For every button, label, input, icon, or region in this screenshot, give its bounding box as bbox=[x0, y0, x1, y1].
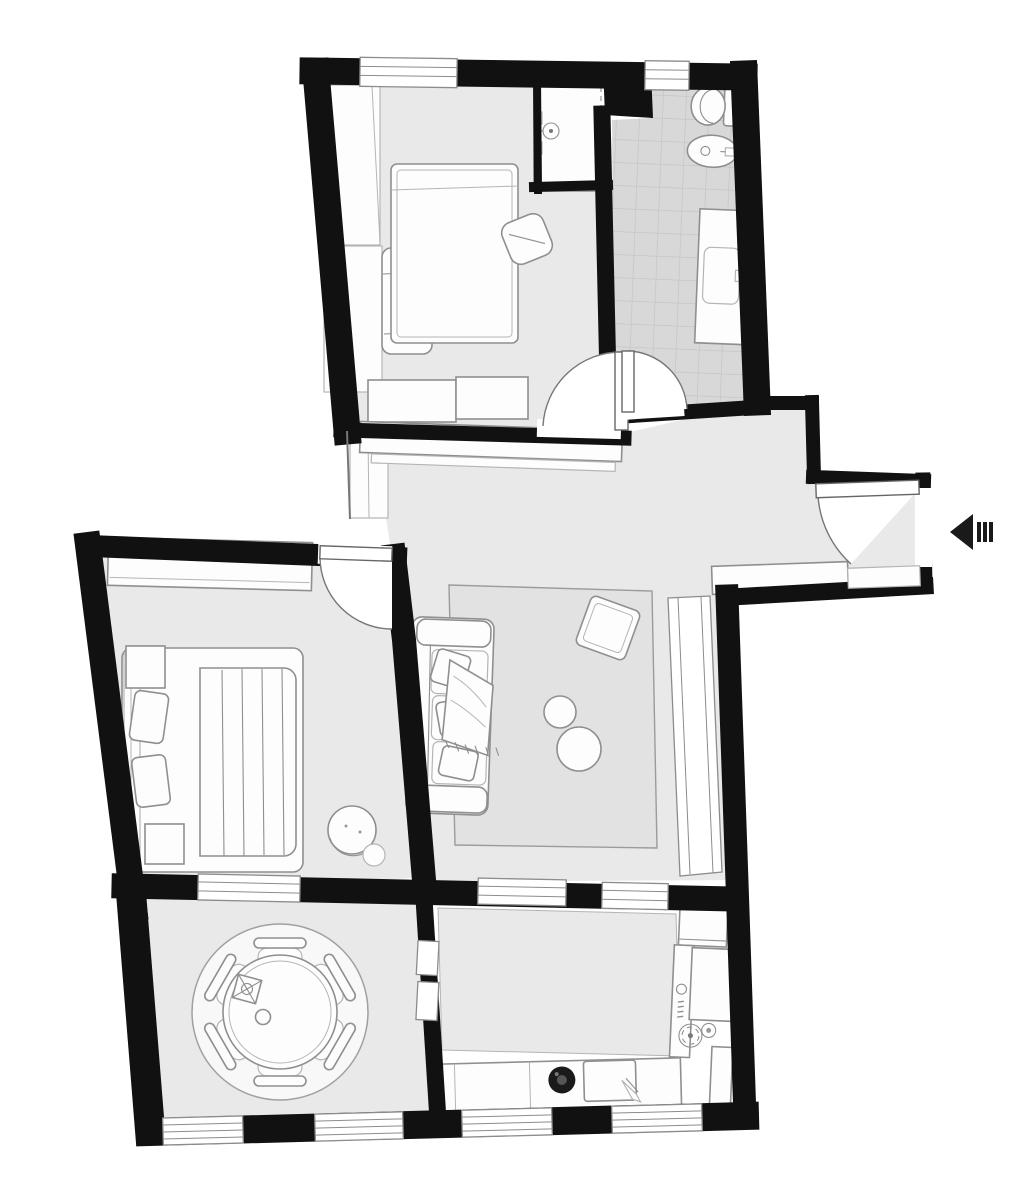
threshold-icon bbox=[848, 566, 921, 589]
window-icon bbox=[645, 61, 689, 91]
window-icon bbox=[198, 874, 301, 902]
window-icon bbox=[315, 1112, 404, 1141]
round-table-icon bbox=[223, 955, 337, 1069]
window-icon bbox=[602, 882, 669, 909]
entrance-arrow-icon bbox=[950, 514, 993, 550]
window-icon bbox=[462, 1108, 553, 1137]
window-icon bbox=[360, 57, 457, 87]
wall-shower-left bbox=[537, 79, 538, 190]
dining-room-furniture bbox=[192, 924, 368, 1100]
counter-icon bbox=[689, 948, 734, 1022]
floor-plan-drawing bbox=[0, 0, 1031, 1200]
wall-bathroom-right bbox=[744, 74, 757, 402]
floor-plan-canvas bbox=[0, 0, 1031, 1200]
nightstand-icon bbox=[145, 824, 184, 864]
coffee-table-large-icon bbox=[557, 727, 601, 771]
tall-cabinet-icon bbox=[709, 1047, 733, 1108]
desk-icon bbox=[368, 377, 528, 422]
wall-dining-west bbox=[132, 905, 150, 1130]
nightstand-icon bbox=[126, 646, 165, 688]
bed-icon bbox=[391, 164, 518, 343]
coffee-table-small-icon bbox=[544, 696, 576, 728]
cutting-board-knife-icon bbox=[583, 1060, 640, 1103]
wall-shower-bottom bbox=[534, 185, 608, 187]
window-icon bbox=[478, 878, 567, 906]
wall-hall-south bbox=[731, 586, 925, 597]
kitchen-rug-icon bbox=[438, 908, 680, 1056]
window-icon bbox=[163, 1116, 244, 1145]
window-icon bbox=[612, 1104, 703, 1133]
